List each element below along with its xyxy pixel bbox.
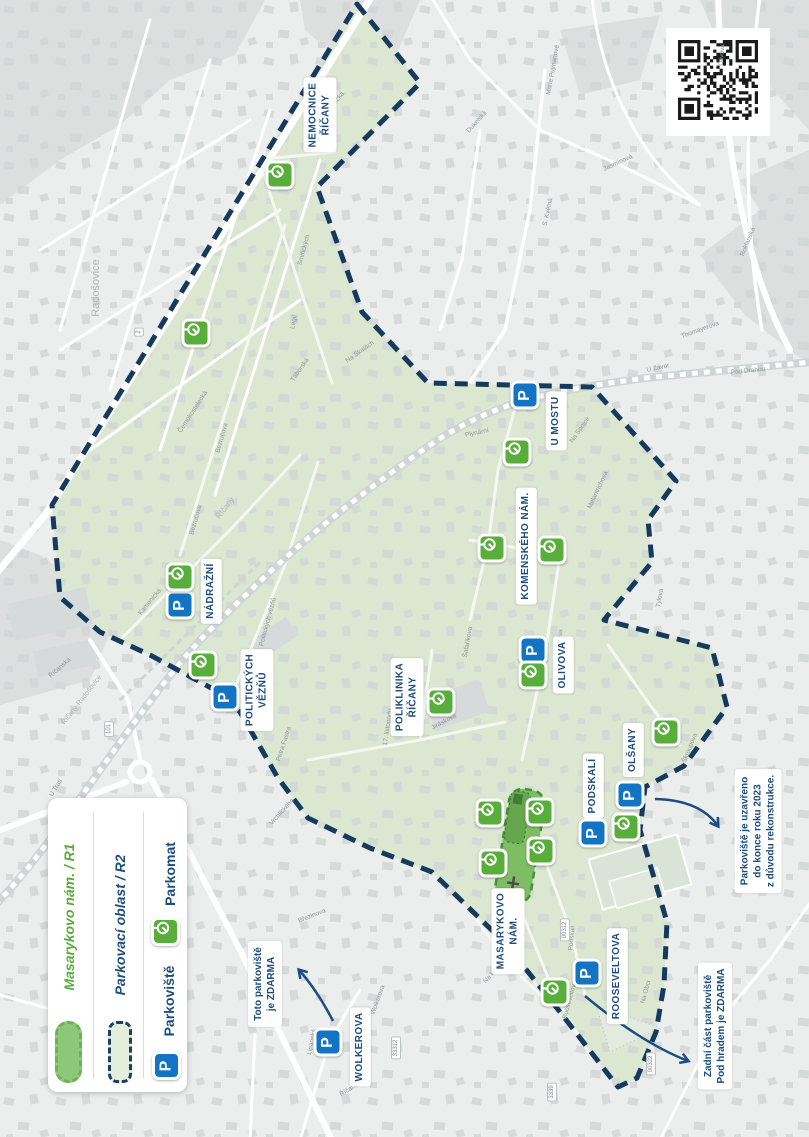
parking-icon[interactable]: P [166,591,195,620]
area-label: POLITICKÝCHVĚZŇŮ [241,649,274,731]
parkomat-icon[interactable] [266,161,295,190]
map-flyer: ČernokosteleckáBezručovaBezručovaSmiřick… [0,0,809,1137]
parkomat-icon[interactable] [527,837,556,866]
street-label: Plynární [465,427,490,439]
street-label: Smiřických [297,234,312,266]
parkomat-icon[interactable] [166,563,195,592]
street-label: Dukelská [465,110,488,135]
parking-icon[interactable]: P [511,381,540,410]
route-badge: 101 [104,721,114,737]
street-label: Říčanská [48,656,73,679]
area-label: ROOSEVELTOVA [607,928,628,1024]
parkomat-icon[interactable] [652,718,681,747]
parkomat-icon[interactable] [478,534,507,563]
parking-icon[interactable]: P [314,1028,343,1057]
street-label: Thomayerova [680,320,720,340]
area-label: NEMOCNICEŘÍČANY [304,78,337,153]
callout: Parkoviště je uzavřenodo konce roku 2023… [735,769,782,893]
area-label: KOMENSKÉHO NÁM. [516,487,537,604]
parking-icon[interactable]: P [579,819,608,848]
parkomat-icon[interactable] [189,651,218,680]
street-label: Bezručova [188,504,203,535]
street-label: Kamenická [137,587,163,616]
callout: Toto parkovištěje ZDARMA [248,941,282,1027]
street-label: Pod Drahou [730,366,765,377]
area-label: POLIKLINIKAŘÍČANY [391,658,424,736]
route-badge: 3339 [547,1082,557,1101]
street-label: U Trati [48,778,64,798]
area-label: WOLKEROVA [350,1008,371,1087]
place-label: Říčany-Radošovice [61,674,104,726]
street-label: Na Obci [640,980,653,1004]
street-label: Tylova [655,588,665,608]
street-label: Vrchlického [268,797,296,826]
area-label: PODSKALÍ [583,754,604,819]
legend-parkomat-label: Parkomat [162,842,178,906]
parking-icon[interactable]: P [211,683,240,712]
route-badge: 2 [134,327,144,336]
route-badge: 00312 [560,919,570,942]
street-label: S. Květná [542,197,555,226]
legend-r1-label: Masarykovo nám. / R1 [61,843,77,990]
street-label: Melantrichova [586,470,609,510]
parking-icon[interactable]: P [573,959,602,988]
place-label: Radošovice [90,259,102,316]
street-label: Wolkerova [369,984,386,1015]
street-label: Na Spojce [569,416,592,445]
street-label: Na Skalách [344,340,375,365]
legend-r2-swatch [108,1021,132,1083]
area-label: MASARYKOVONÁM. [492,888,525,974]
legend-parking-label: Parkoviště [161,966,177,1037]
street-label: U Závor [646,362,670,374]
legend-r1-swatch [55,1021,82,1083]
street-label: Roklanská [739,227,757,258]
parkomat-icon[interactable] [519,661,548,690]
parkomat-icon[interactable] [476,799,505,828]
area-label: NÁDRAŽNÍ [201,558,222,623]
legend-r2-label: Parkovací oblast / R2 [112,855,128,996]
parkomat-icon [151,917,180,946]
parkomat-icon[interactable] [538,536,567,565]
parkomat-icon[interactable] [526,798,555,827]
street-label: Březinova [297,907,326,924]
legend-panel: Masarykovo nám. / R1 Parkovací oblast / … [48,798,187,1092]
callout: Zadní část parkovištěPod hradem je ZDARM… [698,962,732,1089]
street-label: Bezručova [214,422,229,453]
street-label: Škroupova [681,732,699,763]
area-label: U MOSTU [546,392,567,451]
street-label: Marie Pujmanové [545,44,561,95]
parkomat-icon[interactable] [182,319,211,348]
area-label: OLŠANY [623,723,644,777]
street-label: Politických vězňů [258,597,278,647]
route-badge: 00322 [646,1053,656,1076]
route-badge: 33312 [391,1037,401,1060]
legend-divider [93,812,94,1078]
street-label: Černokostelecká [177,390,209,434]
place-label: Říčany [214,495,236,520]
street-label: Petra Fastra [275,726,293,762]
area-label: OLIVOVA [553,636,574,693]
street-label: Táborská [289,357,310,383]
legend-divider [143,812,144,1078]
street-label: Jasmínová [602,153,633,173]
street-label: Legií [289,314,299,329]
parkomat-icon[interactable] [612,813,641,842]
street-label: Šafaříkova [462,626,474,658]
parking-icon: P [152,1051,181,1080]
parkomat-icon[interactable] [503,438,532,467]
street-label: Olivova [718,44,727,66]
parking-icon[interactable]: P [616,781,645,810]
parkomat-icon[interactable] [479,849,508,878]
parkomat-icon[interactable] [541,978,570,1007]
parkomat-icon[interactable] [427,688,456,717]
